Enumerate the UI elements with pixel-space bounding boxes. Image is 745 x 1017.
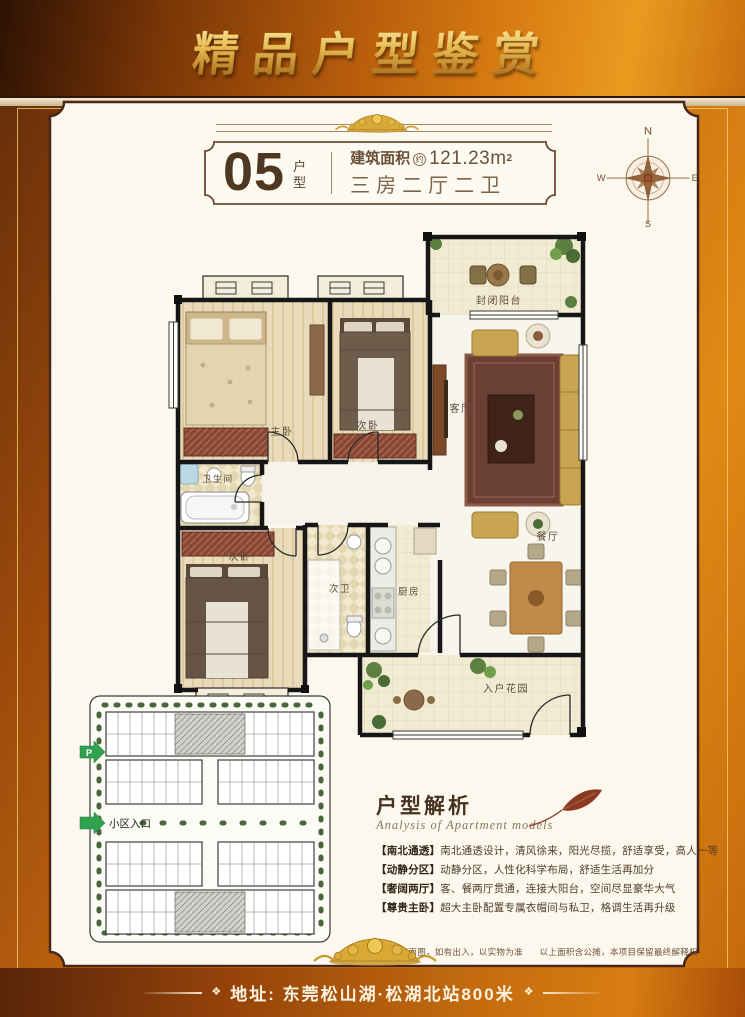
highlighted-units-bottom xyxy=(175,892,245,932)
room-label-balcony: 封闭阳台 xyxy=(476,294,522,307)
compass-s: S xyxy=(645,219,651,228)
compass-w: W xyxy=(597,173,606,183)
area-value: 121.23m xyxy=(429,148,506,171)
quill-icon xyxy=(526,786,610,828)
area-sup: 2 xyxy=(507,153,513,165)
analysis-item: 【尊贵主卧】超大主卧配置专属衣帽间与私卫，格调生活再升级 xyxy=(376,900,698,915)
area-label: 建筑面积 xyxy=(350,150,410,168)
unit-type-label: 户型 xyxy=(293,159,309,192)
analysis-title: 户型解析 xyxy=(376,795,472,818)
compass-rose: N S W E xyxy=(596,124,700,228)
compass-n: N xyxy=(644,125,652,137)
floorplan: 封闭阳台 客厅 主卧 次卧 卫生间 次卧 次卫 厨房 餐厅 入户花园 xyxy=(168,230,596,745)
ornament-line-right xyxy=(543,992,601,994)
room-label-master: 主卧 xyxy=(271,425,294,438)
area-line: 建筑面积 约 121.23m 2 xyxy=(350,148,512,171)
room-label-kitchen: 厨房 xyxy=(398,586,420,598)
room-label-bath2: 次卫 xyxy=(329,583,351,595)
disclaimer-right: 以上面积含公摊，本项目保留最终解释权 xyxy=(539,947,697,957)
layout-text: 三房二厅二卫 xyxy=(350,174,512,198)
bathroom1-fixtures xyxy=(180,464,255,523)
unit-info-box: 05 户型 建筑面积 约 121.23m 2 三房二厅二卫 xyxy=(203,140,557,206)
main-panel: 05 户型 建筑面积 约 121.23m 2 三房二厅二卫 xyxy=(48,100,700,968)
top-banner: 精品户型鉴赏 xyxy=(0,0,745,96)
ornament-line-left xyxy=(144,992,202,994)
diamond-icon: ❖ xyxy=(211,987,221,998)
room-label-bath1: 卫生间 xyxy=(202,473,234,484)
highlighted-units-top xyxy=(175,714,245,754)
crown-ornament-top xyxy=(332,106,422,138)
room-label-dining: 餐厅 xyxy=(537,530,560,543)
room-label-bedroom2: 次卧 xyxy=(357,419,380,432)
parking-label: P xyxy=(86,748,92,758)
divider xyxy=(331,152,332,194)
analysis-item: 【动静分区】动静分区，人性化科学布局，舒适生活再加分 xyxy=(376,862,698,877)
entrance-label: 小区入口 xyxy=(109,818,151,830)
address-bar: ❖ 地址: 东莞松山湖·松湖北站800米 ❖ xyxy=(0,968,745,1017)
crown-ornament-bottom xyxy=(310,932,440,968)
diamond-icon: ❖ xyxy=(524,987,534,998)
unit-number: 05 xyxy=(223,147,285,198)
area-approx-badge: 约 xyxy=(413,153,426,166)
address-text: 地址: 东莞松山湖·松湖北站800米 xyxy=(230,980,514,1005)
analysis-section: 户型解析 Analysis of Apartment models 【南北通透】… xyxy=(376,790,698,919)
room-label-bedroom3: 次卧 xyxy=(229,550,252,563)
room-label-garden: 入户花园 xyxy=(483,682,529,695)
poster-title: 精品户型鉴赏 xyxy=(189,18,556,84)
analysis-list: 【南北通透】南北通透设计，清风徐来，阳光尽揽，舒适享受，高人一等 【动静分区】动… xyxy=(376,843,698,915)
compass-e: E xyxy=(692,173,698,183)
poster-page: { "banner": { "title": "精品户型鉴赏" }, "unit… xyxy=(0,0,745,1017)
bedroom2-furniture xyxy=(334,318,416,458)
analysis-item: 【南北通透】南北通透设计，清风徐来，阳光尽揽，舒适享受，高人一等 xyxy=(376,843,698,858)
analysis-item: 【奢阔两厅】客、餐两厅贯通，连接大阳台，空间尽显豪华大气 xyxy=(376,881,698,896)
room-label-living: 客厅 xyxy=(450,402,473,415)
